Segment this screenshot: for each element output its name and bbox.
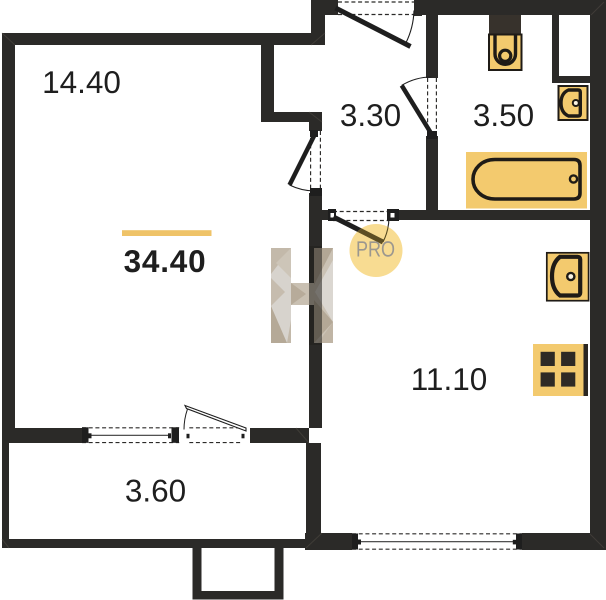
svg-text:34.40: 34.40 — [124, 243, 207, 279]
svg-text:11.10: 11.10 — [411, 361, 488, 397]
svg-text:PRO: PRO — [356, 237, 395, 262]
svg-text:3.50: 3.50 — [473, 97, 534, 133]
svg-text:3.60: 3.60 — [125, 473, 186, 509]
svg-text:3.30: 3.30 — [340, 97, 401, 133]
svg-text:14.40: 14.40 — [42, 64, 121, 100]
